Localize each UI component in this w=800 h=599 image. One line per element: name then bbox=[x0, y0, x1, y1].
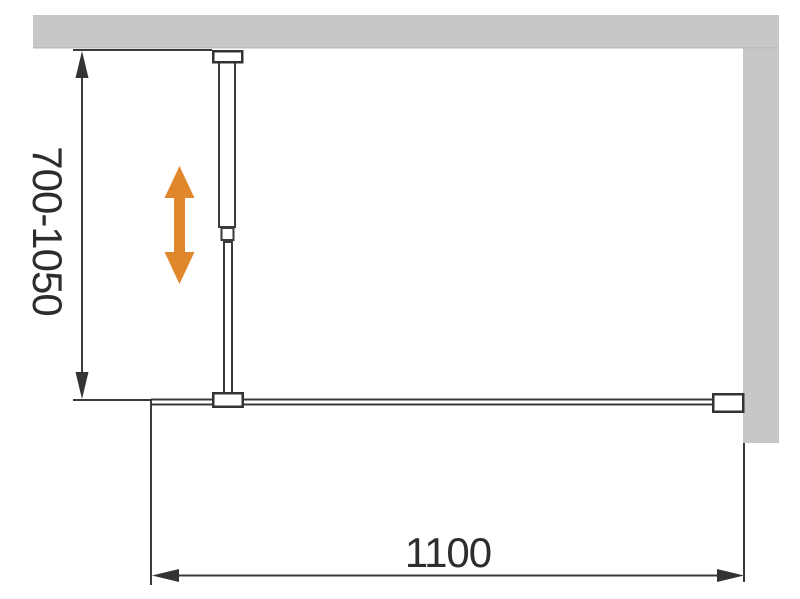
glass-clamp bbox=[213, 393, 243, 407]
height-dimension-label: 700-1050 bbox=[26, 146, 68, 316]
ceiling-bracket bbox=[213, 51, 242, 62]
support-bar-collar bbox=[222, 228, 234, 240]
diagram-canvas: 700-1050 1100 bbox=[0, 0, 800, 599]
top-wall bbox=[33, 15, 779, 48]
width-dimension-label: 1100 bbox=[405, 532, 491, 574]
support-bar-upper-tube bbox=[219, 62, 235, 227]
support-bar-lower-tube bbox=[224, 242, 232, 394]
top-wall-edge bbox=[33, 47, 779, 49]
height-arrow-up-icon bbox=[76, 51, 89, 78]
width-arrow-left-icon bbox=[152, 569, 179, 582]
height-arrow-down-icon bbox=[76, 372, 89, 399]
side-wall bbox=[743, 15, 779, 443]
width-arrow-right-icon bbox=[717, 569, 744, 582]
wall-bracket bbox=[713, 394, 743, 412]
height-adjust-arrow-icon bbox=[165, 166, 195, 284]
diagram-linework bbox=[0, 0, 800, 599]
